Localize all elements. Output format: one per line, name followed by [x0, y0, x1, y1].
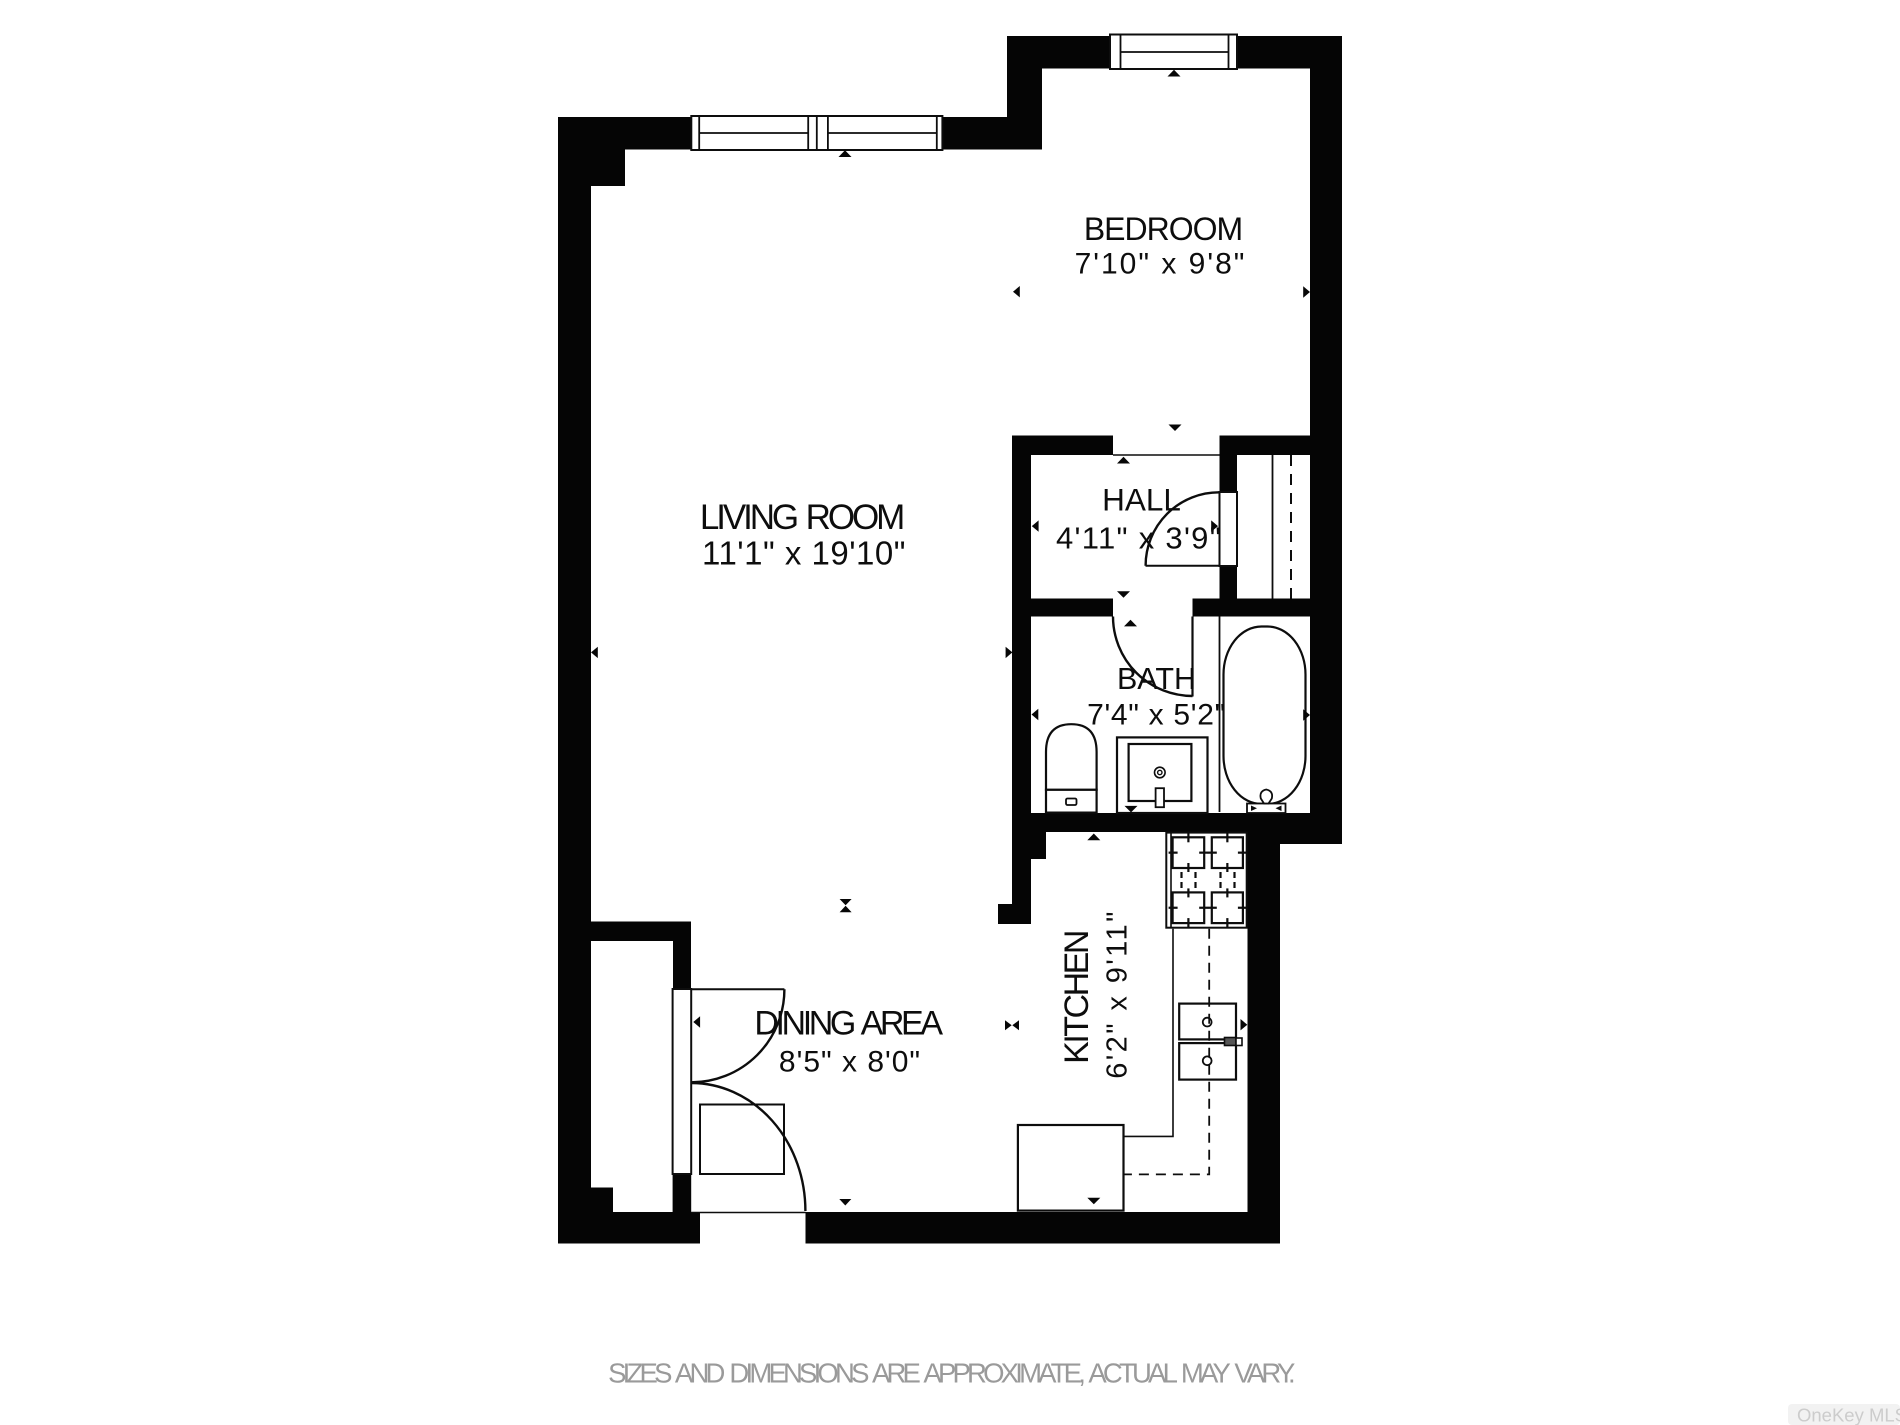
svg-text:LIVING ROOM: LIVING ROOM	[700, 498, 903, 537]
svg-text:HALL: HALL	[1102, 482, 1181, 518]
svg-text:7'10" x 9'8": 7'10" x 9'8"	[1075, 248, 1247, 281]
svg-text:BATH: BATH	[1117, 662, 1196, 696]
svg-text:7'4" x 5'2": 7'4" x 5'2"	[1087, 699, 1226, 732]
svg-text:4'11" x 3'9": 4'11" x 3'9"	[1056, 521, 1222, 556]
svg-text:DINING AREA: DINING AREA	[754, 1005, 943, 1043]
svg-text:8'5" x 8'0": 8'5" x 8'0"	[779, 1046, 921, 1079]
svg-text:6'2" x 9'11": 6'2" x 9'11"	[1102, 909, 1134, 1079]
svg-text:OneKey MLS: OneKey MLS	[1797, 1405, 1900, 1425]
svg-text:BEDROOM: BEDROOM	[1084, 211, 1242, 247]
svg-text:SIZES AND DIMENSIONS ARE APPRO: SIZES AND DIMENSIONS ARE APPROXIMATE, AC…	[608, 1358, 1295, 1389]
svg-text:KITCHEN: KITCHEN	[1058, 932, 1096, 1064]
svg-text:11'1" x 19'10": 11'1" x 19'10"	[702, 535, 906, 572]
